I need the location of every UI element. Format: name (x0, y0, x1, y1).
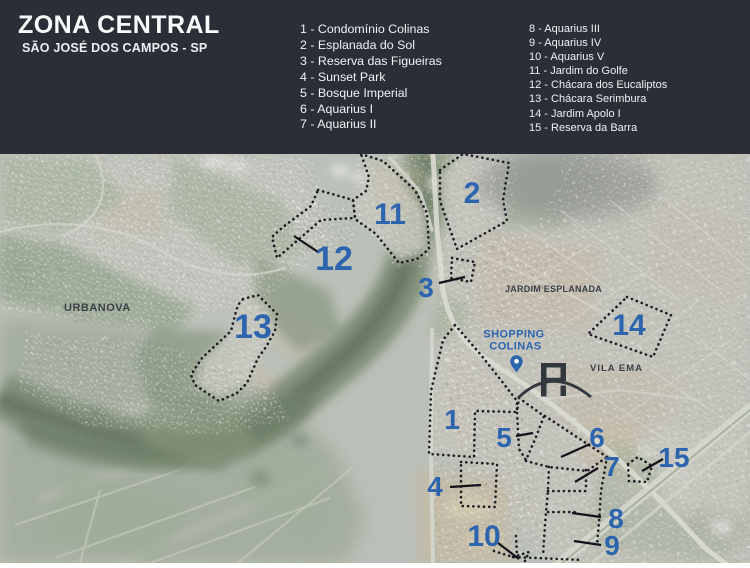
svg-text:7: 7 (604, 451, 620, 482)
svg-text:VILA EMA: VILA EMA (590, 363, 643, 374)
svg-text:15: 15 (658, 442, 689, 473)
svg-text:3: 3 (418, 272, 434, 303)
svg-text:5: 5 (496, 422, 512, 453)
svg-text:13: 13 (234, 308, 272, 346)
svg-text:URBANOVA: URBANOVA (64, 302, 131, 314)
svg-text:6: 6 (589, 422, 605, 453)
svg-text:4: 4 (427, 471, 443, 502)
svg-text:10: 10 (467, 520, 500, 553)
svg-text:COLINAS: COLINAS (489, 341, 541, 353)
svg-text:9: 9 (604, 530, 620, 561)
svg-text:1: 1 (444, 404, 460, 435)
svg-text:11: 11 (374, 198, 406, 231)
svg-text:12: 12 (315, 240, 353, 278)
svg-text:JARDIM ESPLANADA: JARDIM ESPLANADA (505, 284, 602, 294)
svg-text:14: 14 (612, 309, 646, 342)
svg-text:2: 2 (464, 177, 481, 210)
svg-text:SHOPPING: SHOPPING (483, 329, 544, 341)
